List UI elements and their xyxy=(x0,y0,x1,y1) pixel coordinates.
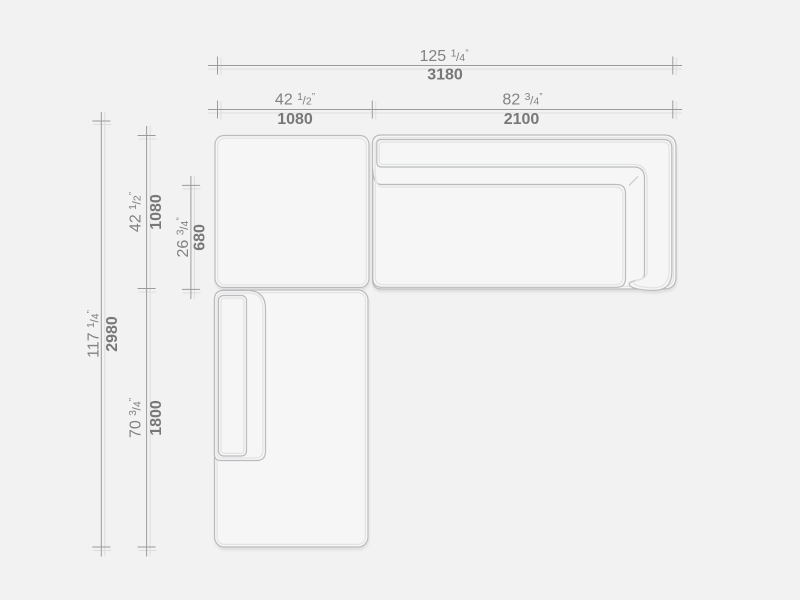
svg-text:1800: 1800 xyxy=(148,400,165,436)
svg-text:1080: 1080 xyxy=(277,111,313,128)
svg-text:1080: 1080 xyxy=(148,194,165,230)
svg-text:680: 680 xyxy=(192,224,209,251)
svg-text:3180: 3180 xyxy=(427,67,463,84)
svg-text:2100: 2100 xyxy=(504,111,540,128)
svg-text:2980: 2980 xyxy=(104,316,121,352)
